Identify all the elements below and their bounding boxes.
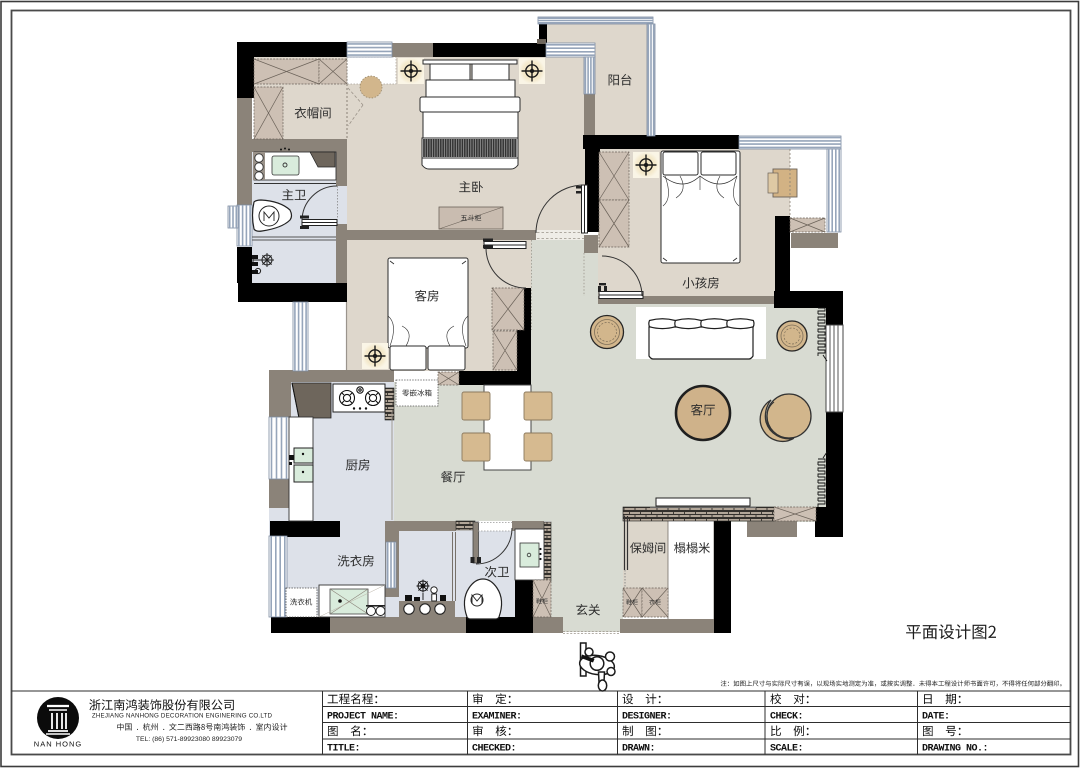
svg-text:NAN HONG: NAN HONG (34, 740, 82, 749)
svg-text:TEL: (86) 571-89923080 8992: TEL: (86) 571-89923080 89923079 (136, 736, 242, 743)
svg-text:DRAWN:: DRAWN: (622, 744, 655, 755)
svg-text:TITLE:: TITLE: (327, 744, 360, 755)
svg-text:DATE:: DATE: (922, 712, 950, 723)
svg-text:DESIGNER:: DESIGNER: (622, 712, 672, 723)
svg-text:SCALE:: SCALE: (770, 744, 803, 755)
svg-text:DRAWING NO.:: DRAWING NO.: (922, 744, 988, 755)
svg-text:PROJECT NAME:: PROJECT NAME: (327, 712, 399, 723)
svg-text:ZHEJIANG NANHONG DECORATION EN: ZHEJIANG NANHONG DECORATION ENGINERING C… (92, 713, 273, 720)
svg-text:EXAMINER:: EXAMINER: (472, 712, 522, 723)
svg-text:CHECK:: CHECK: (770, 712, 803, 723)
svg-text:CHECKED:: CHECKED: (472, 744, 516, 755)
